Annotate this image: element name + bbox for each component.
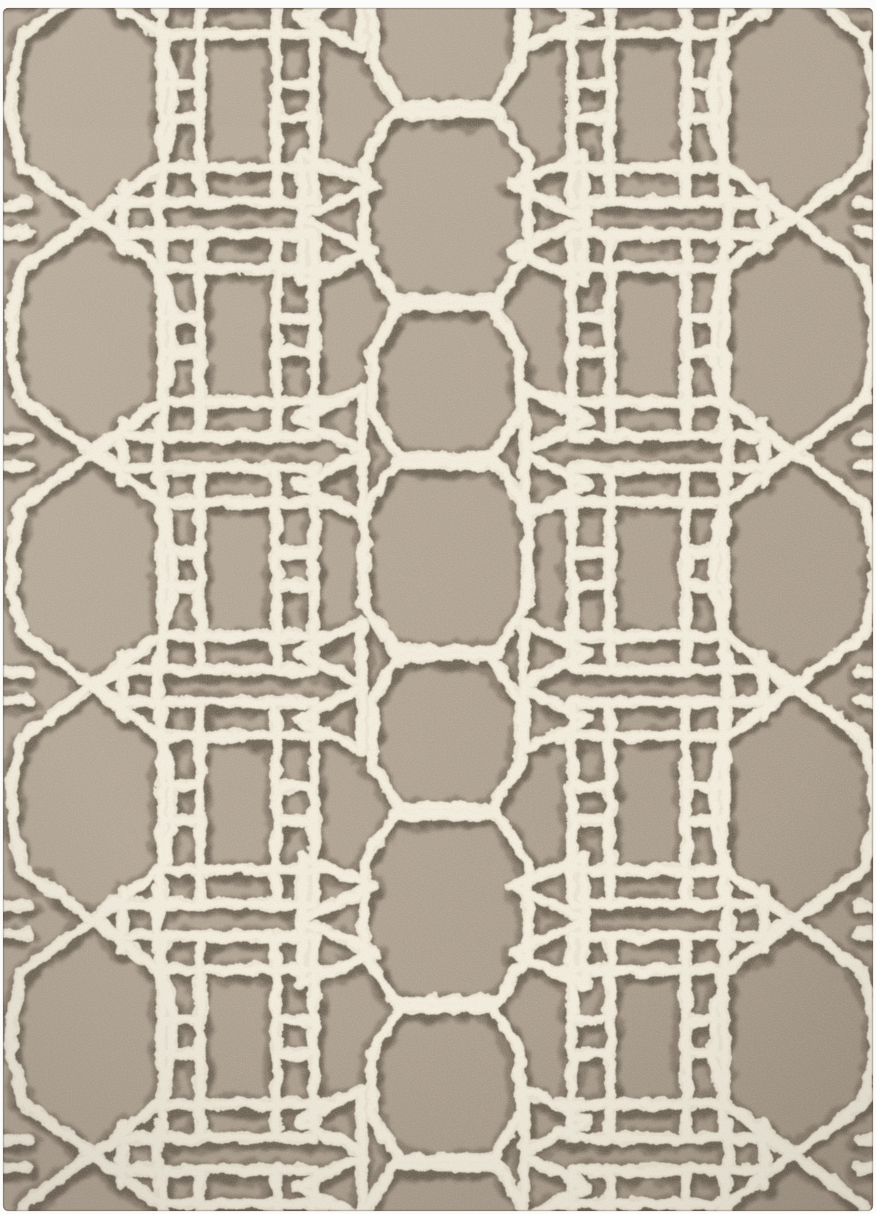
product-photo [0, 0, 876, 1214]
rug [0, 0, 876, 1214]
rug-pattern-svg [0, 0, 876, 1214]
